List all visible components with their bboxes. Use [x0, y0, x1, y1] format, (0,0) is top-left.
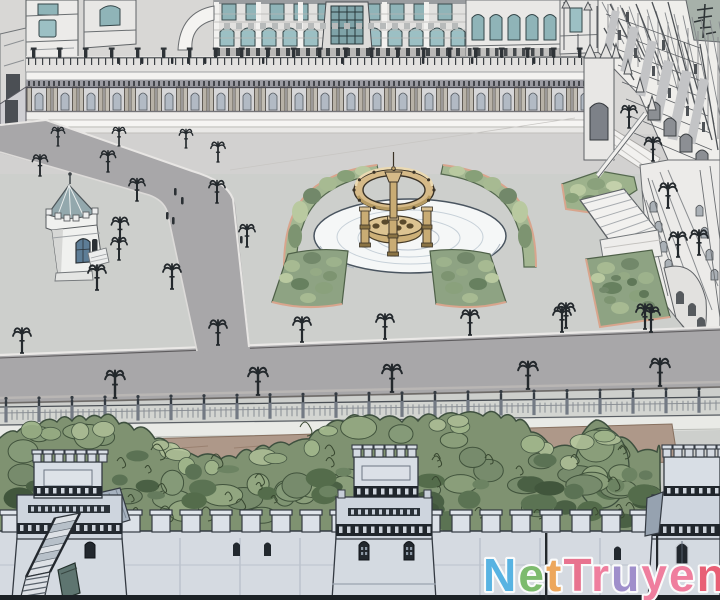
svg-text:NetTruyen: NetTruyen [483, 549, 720, 600]
